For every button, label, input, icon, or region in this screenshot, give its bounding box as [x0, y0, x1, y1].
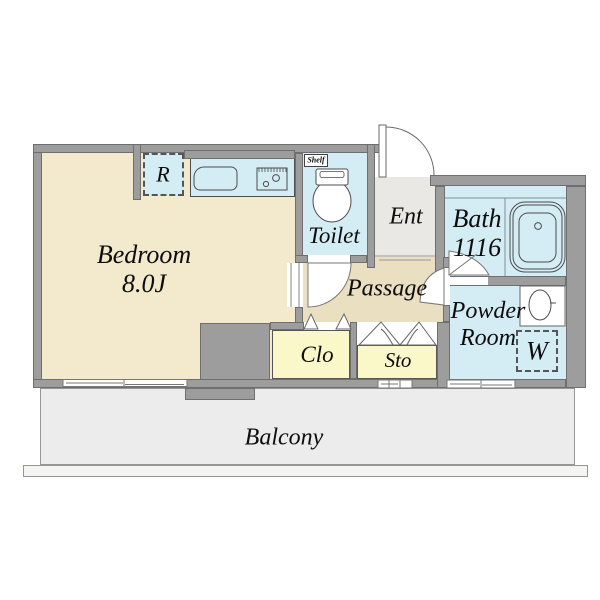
closet-bifold-door-icon: [304, 314, 351, 329]
bath-size: 1116: [453, 233, 501, 262]
toilet-door-icon: [308, 263, 351, 307]
bath-name: Bath: [452, 204, 501, 233]
powder-line2: Room: [460, 325, 516, 351]
closet-label: Clo: [300, 342, 333, 368]
sink-icon: [194, 167, 237, 190]
storage-window-icon: [378, 380, 412, 388]
powder-window-icon: [447, 380, 515, 388]
powder-room-label: Powder Room: [451, 298, 526, 352]
toilet-icon: [313, 169, 351, 222]
entrance-label: Ent: [389, 204, 422, 231]
refrigerator-label: R: [156, 163, 169, 188]
bedroom-size: 8.0J: [122, 269, 166, 298]
stove-icon: [257, 168, 287, 190]
bathtub-icon: [510, 202, 565, 272]
entrance-door-icon: [379, 125, 434, 177]
floor-plan: Shelf R Bedroom 8.0J Toilet Ent Bath 111…: [0, 0, 600, 600]
storage-label: Sto: [385, 349, 412, 373]
bedroom-window-icon: [63, 380, 187, 387]
washer-label: W: [526, 336, 548, 365]
passage-label: Passage: [347, 276, 427, 303]
bedroom-sliding-door-icon: [287, 263, 303, 307]
powder-line1: Powder: [451, 298, 526, 324]
washbasin-icon: [520, 286, 565, 326]
bath-label: Bath 1116: [452, 204, 501, 262]
toilet-label: Toilet: [308, 223, 360, 249]
bedroom-name: Bedroom: [97, 240, 191, 269]
bedroom-label: Bedroom 8.0J: [97, 240, 191, 298]
shelf-label: Shelf: [307, 157, 324, 166]
entrance-step: [375, 256, 435, 260]
storage-bifold-door-icon: [359, 322, 436, 345]
balcony-label: Balcony: [245, 425, 324, 452]
